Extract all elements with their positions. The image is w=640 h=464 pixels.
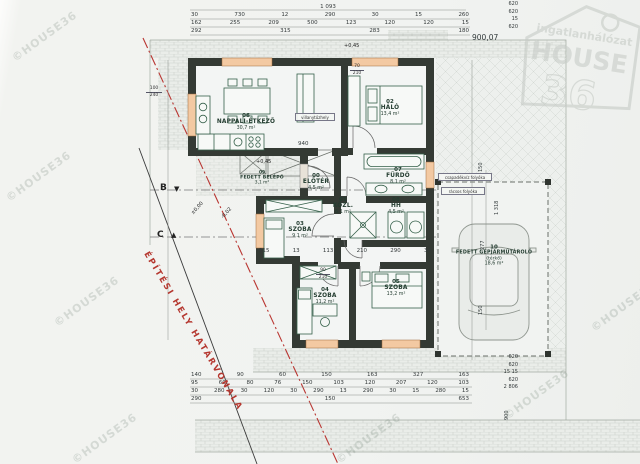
dimension-value: 207 <box>395 380 408 386</box>
dimension-value: 150 <box>301 380 314 386</box>
dim-right-150b: 150 <box>478 305 484 315</box>
dimension-value: 15 <box>512 16 518 22</box>
dimension-value: 290 <box>312 388 325 394</box>
logo-text-number: 36 <box>537 67 599 121</box>
level-mark-plus045-entry: +0,45 <box>256 159 271 165</box>
dimension-value: 76 <box>273 380 282 386</box>
dimension-value: 30 <box>190 388 199 394</box>
dimension-value: 123 <box>345 20 358 26</box>
dimension-value: 1 093 <box>319 4 337 10</box>
dimension-value: 209 <box>267 20 280 26</box>
dimension-value: 620 <box>508 362 518 368</box>
dim-row-bottom-2: 95608076150103120207120103 <box>190 380 470 386</box>
room-area: 4,5 m² <box>388 210 404 216</box>
dimension-value: 120 <box>426 380 439 386</box>
dimension-value: 290 <box>362 388 375 394</box>
dimension-value: 30 <box>240 388 249 394</box>
room-area: 30,7 m² <box>217 126 275 132</box>
dimension-value: 15 <box>461 388 470 394</box>
room-area: 18,6 m² <box>444 262 544 268</box>
door-spec-a: 70 210 <box>350 64 364 76</box>
room-label-nappali: 06 NAPPALI-ÉTKEZŐ 30,7 m² <box>217 113 275 131</box>
dim-right-150a: 150 <box>478 162 484 172</box>
room-label-halo: 02 HÁLÓ 13,4 m² <box>381 99 400 117</box>
room-name: FÜRDŐ <box>386 173 410 180</box>
dimension-value: 2 806 <box>504 384 518 390</box>
dimension-value: 113 <box>322 248 335 254</box>
dimension-value: 163 <box>366 372 379 378</box>
dimension-value: 140 <box>190 372 203 378</box>
dimension-value: 315 <box>258 248 271 254</box>
room-label-eloter: 00 ELŐTÉR 4,5 m² <box>303 173 329 191</box>
room-name: KÖZL. <box>333 203 353 210</box>
note-box-appliance: villanytűzhely <box>295 113 335 121</box>
dim-inner-940: 940 <box>298 141 309 147</box>
house36-logo: ingatlanhálózat HOUSE 36 <box>516 0 640 122</box>
dimension-value: 620 <box>508 354 518 360</box>
dimension-value: 15 <box>411 388 420 394</box>
room-label-szoba-03: 03 SZOBA 9,1 m² <box>288 221 311 239</box>
dim-row-bottom-1: 1409060150163327163 <box>190 372 470 378</box>
dimension-value: 15 <box>461 20 470 26</box>
window-spec: 100 240 <box>146 86 162 98</box>
room-area: 9,1 m² <box>288 234 311 240</box>
dimension-value: 620 <box>508 9 518 15</box>
dimension-value: 103 <box>457 380 470 386</box>
floor-plan-sheet: ingatlanhálózat HOUSE 36 ©HOUSE36 ©HOUSE… <box>0 0 640 464</box>
dimension-value: 180 <box>457 28 470 34</box>
dimension-value: 315 <box>279 28 292 34</box>
room-name: SZOBA <box>313 293 336 300</box>
note-box-drain-2: rácsos folyóka <box>441 187 485 195</box>
dimension-value: 15 15 <box>504 369 518 375</box>
dimension-value: 15 <box>414 12 423 18</box>
dim-row-top-4: 292315283180 <box>190 28 470 34</box>
room-label-szoba-04: 04 SZOBA 11,2 m² <box>313 287 336 305</box>
dimension-value: 327 <box>412 372 425 378</box>
room-label-hh: 08 HH 4,5 m² <box>388 197 404 215</box>
dimension-value: 80 <box>246 380 255 386</box>
room-name: HÁLÓ <box>381 105 400 112</box>
dim-right-1318: 1 318 <box>494 201 500 215</box>
dim-row-inner: 3151311321029030 <box>258 248 432 254</box>
spec-height: 240 <box>146 92 162 99</box>
dimension-value: 13 <box>292 248 301 254</box>
room-name: SZOBA <box>288 227 311 234</box>
room-label-furdo: 07 FÜRDŐ 8,1 m² <box>386 167 410 185</box>
section-marker-c-arrow: ▲ <box>171 231 176 239</box>
dimension-value: 620 <box>508 1 518 7</box>
dimension-value: 163 <box>458 372 471 378</box>
site-elevation: 900,07 <box>472 33 498 42</box>
dimension-value: 30 <box>371 12 380 18</box>
dimension-value: 500 <box>306 20 319 26</box>
dimension-value: 90 <box>236 372 245 378</box>
dim-row-top-3: 16225520950012312012015 <box>190 20 470 26</box>
room-name: HH <box>388 203 404 210</box>
dim-row-top-2: 30730122903015260 <box>190 12 470 18</box>
section-marker-c: C <box>157 230 164 240</box>
dimension-value: 290 <box>324 12 337 18</box>
room-label-kozl: 01 KÖZL. 6,1 m² <box>333 197 353 215</box>
dimension-value: 150 <box>324 396 337 402</box>
dimension-value: 162 <box>190 20 203 26</box>
note-box-drain-1: csapadékvíz folyóka <box>438 173 492 181</box>
dimension-value: 103 <box>332 380 345 386</box>
dimension-value: 255 <box>229 20 242 26</box>
dimension-value: 280 <box>434 388 447 394</box>
section-marker-b: B <box>160 183 167 193</box>
room-label-szoba-05: 05 SZOBA 13,2 m² <box>384 279 407 297</box>
door-spec-b: 90 210 <box>316 268 330 280</box>
room-area: 8,1 m² <box>386 180 410 186</box>
dimension-value: 120 <box>422 20 435 26</box>
dimension-value: 283 <box>368 28 381 34</box>
room-area: 11,2 m² <box>313 300 336 306</box>
dimension-value: 30 <box>190 12 199 18</box>
room-area: 3,1 m² <box>240 181 284 186</box>
dimension-value: 30 <box>388 388 397 394</box>
room-area: 13,4 m² <box>381 112 400 118</box>
dim-row-top-1: 1 093 <box>190 4 466 10</box>
dimension-value: 653 <box>458 396 471 402</box>
dimension-value: 620 <box>508 24 518 30</box>
dimension-value: 60 <box>278 372 287 378</box>
dimension-value: 13 <box>339 388 348 394</box>
dimension-value: 210 <box>356 248 369 254</box>
room-name: SZOBA <box>384 285 407 292</box>
spec-height: 210 <box>350 70 364 77</box>
dimension-value: 120 <box>364 380 377 386</box>
section-marker-b-arrow: ▼ <box>174 185 179 193</box>
dimension-value: 30 <box>423 248 432 254</box>
dim-col-top-right: 62062015620 <box>492 1 518 30</box>
room-area: 4,5 m² <box>303 186 329 192</box>
room-name: NAPPALI-ÉTKEZŐ <box>217 119 275 126</box>
dimension-value: 30 <box>289 388 298 394</box>
level-mark-plus045-top: +0,45 <box>344 43 359 49</box>
dimension-value: 290 <box>389 248 402 254</box>
room-area: 6,1 m² <box>333 210 353 216</box>
dimension-value: 120 <box>384 20 397 26</box>
dimension-value: 292 <box>190 28 203 34</box>
car-top-view <box>452 224 536 340</box>
room-name: ELŐTÉR <box>303 179 329 186</box>
dim-col-bottom-right: 62062015 156202 806 <box>474 354 518 390</box>
dimension-value: 260 <box>457 12 470 18</box>
dimension-value: 150 <box>320 372 333 378</box>
dimension-value: 12 <box>280 12 289 18</box>
dimension-value: 120 <box>263 388 276 394</box>
spec-height: 210 <box>316 274 330 281</box>
dimension-value: 620 <box>508 377 518 383</box>
dimension-value: 95 <box>190 380 199 386</box>
room-area: 13,2 m² <box>384 292 407 298</box>
room-label-fedett-belepo: 09 FEDETT BELÉPŐ 3,1 m² <box>240 170 284 185</box>
dimension-value: 730 <box>233 12 246 18</box>
dimension-value: 290 <box>190 396 203 402</box>
room-label-carport: 10 FEDETT GÉPJÁRMŰTÁROLÓ (térkő) 18,6 m² <box>444 245 544 268</box>
